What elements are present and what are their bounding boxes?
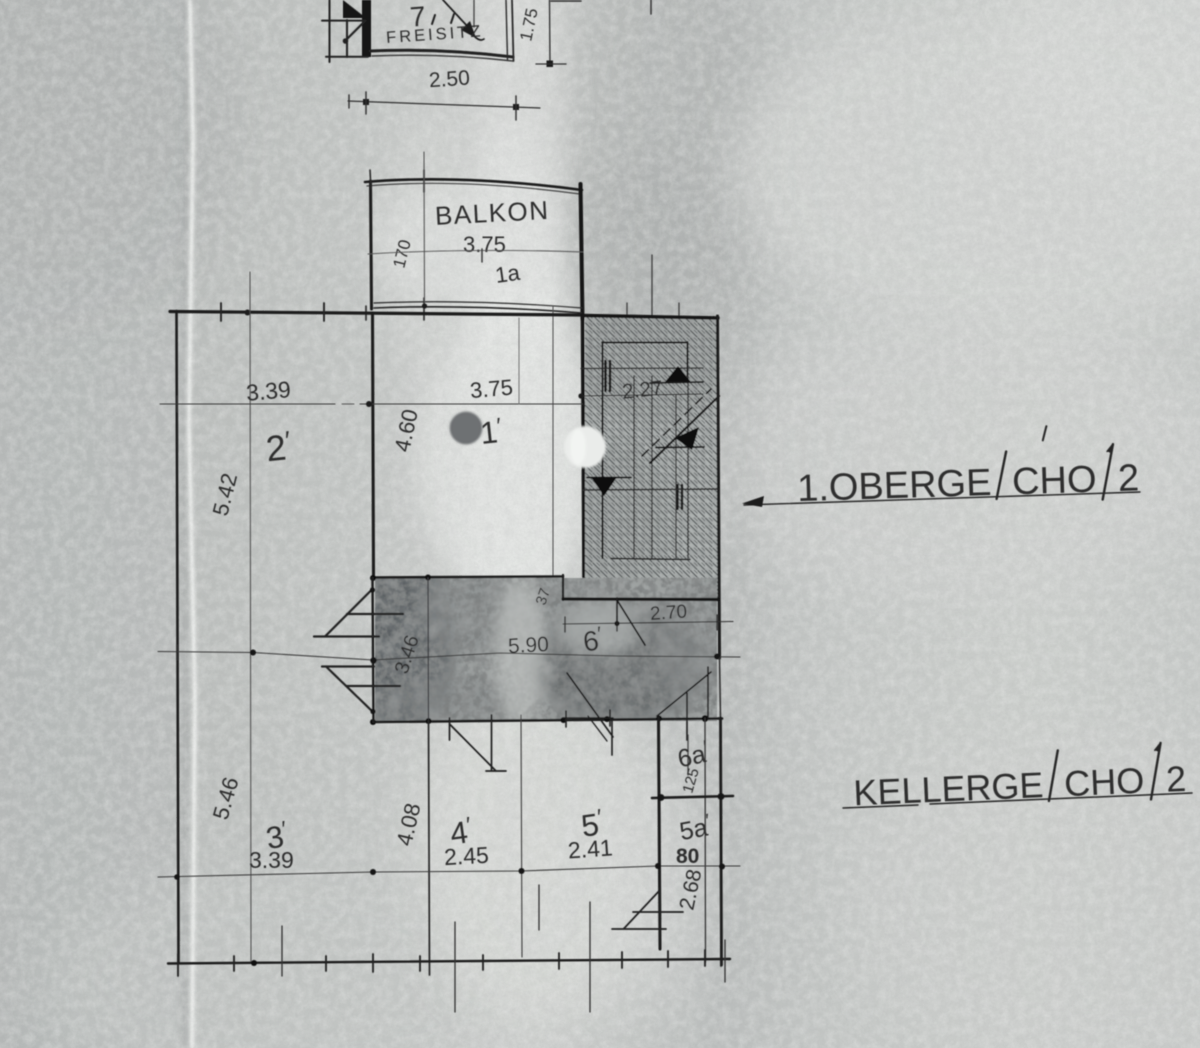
svg-text:BALKON: BALKON	[434, 195, 550, 231]
svg-text:80: 80	[676, 845, 699, 868]
svg-text:CHO: CHO	[1011, 459, 1097, 504]
svg-text:3.75: 3.75	[469, 374, 514, 403]
svg-text:2.70: 2.70	[649, 601, 687, 625]
svg-text:1.OBERGE: 1.OBERGE	[797, 462, 993, 510]
svg-text:2.27: 2.27	[621, 377, 664, 404]
svg-text:2.45: 2.45	[443, 842, 489, 870]
svg-text:2: 2	[1165, 758, 1187, 800]
svg-text:CHO: CHO	[1063, 760, 1145, 804]
svg-text:KELLERGE: KELLERGE	[853, 764, 1045, 813]
svg-text:2.50: 2.50	[428, 67, 470, 93]
svg-text:3.39: 3.39	[245, 376, 292, 406]
svg-text:2.41: 2.41	[567, 834, 613, 863]
svg-text:2: 2	[1117, 457, 1139, 500]
svg-text:3.39: 3.39	[249, 847, 294, 873]
svg-text:5.90: 5.90	[507, 633, 549, 658]
svg-text:3.75: 3.75	[463, 232, 506, 257]
svg-text:1a: 1a	[494, 260, 522, 288]
